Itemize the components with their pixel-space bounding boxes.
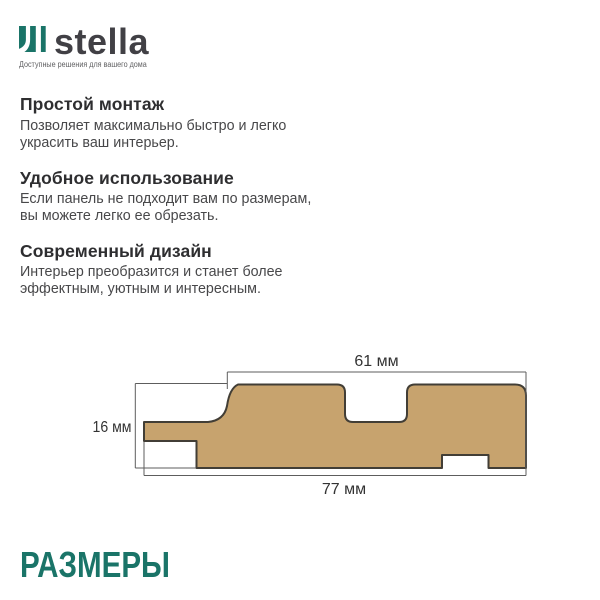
svg-text:61 мм: 61 мм bbox=[354, 353, 398, 370]
svg-text:16 мм: 16 мм bbox=[93, 419, 132, 436]
svg-text:77 мм: 77 мм bbox=[322, 481, 366, 498]
